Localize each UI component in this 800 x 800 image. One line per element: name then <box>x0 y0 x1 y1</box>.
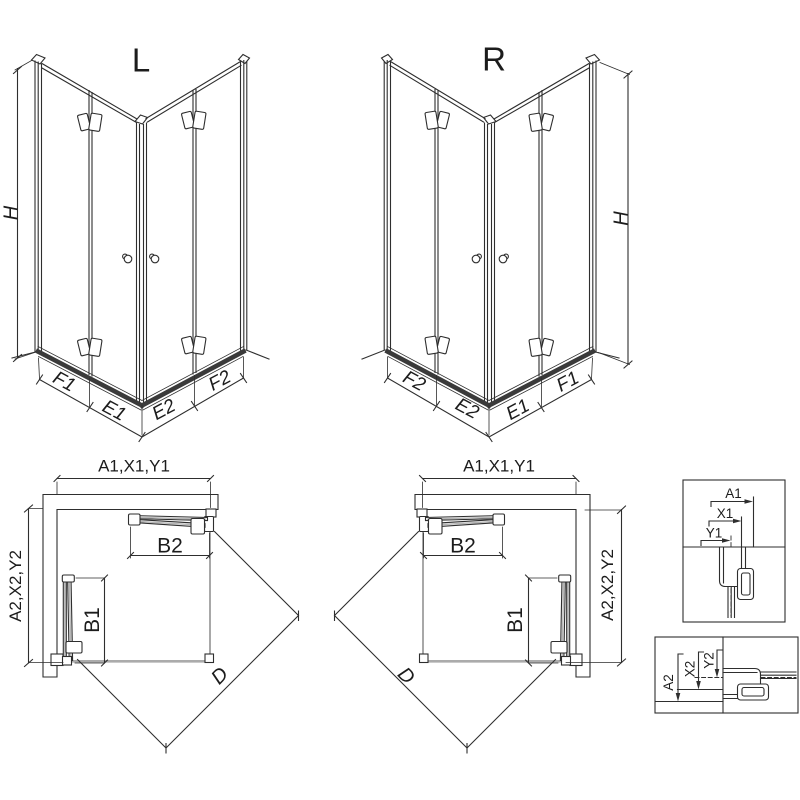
detail-box-wall-profile-top: A1 X1 Y1 <box>683 480 785 622</box>
plan-geometry-mirrored <box>335 476 591 754</box>
dim-label-B2: B2 <box>450 535 476 558</box>
dim-label-depth: A2,X2,Y2 <box>6 550 25 622</box>
dim-label-width: A1,X1,Y1 <box>463 457 535 476</box>
detail-dim-X1: X1 <box>717 506 734 521</box>
enclosure-3d-geometry <box>12 55 269 411</box>
height-dimension-left: H <box>1 61 35 362</box>
detail-box-wall-profile-bottom: A2 X2 Y2 <box>655 637 798 713</box>
drawing-canvas: H F1 E1 E2 F2 L H F2 E2 E1 F1 R A1,X1,Y1 <box>0 0 800 800</box>
dim-label-B1: B1 <box>504 607 527 633</box>
plan-view-left: A1,X1,Y1 A2,X2,Y2 B2 B1 D <box>6 457 299 754</box>
detail-dim-Y1: Y1 <box>706 526 723 541</box>
dim-label-depth: A2,X2,Y2 <box>598 549 617 621</box>
dim-label-H: H <box>611 211 633 226</box>
dim-label-E1: E1 <box>99 396 129 425</box>
detail-dim-X2: X2 <box>683 661 698 678</box>
dim-label-H: H <box>1 205 23 220</box>
detail-dim-A1: A1 <box>725 486 742 501</box>
dim-label-D: D <box>393 663 419 689</box>
plan-view-right: A1,X1,Y1 A2,X2,Y2 B2 B1 D <box>335 457 626 754</box>
bottom-dimension-chain <box>37 357 247 442</box>
dim-label-E1: E1 <box>503 395 533 424</box>
detail-dim-Y2: Y2 <box>702 652 717 669</box>
dim-label-B2: B2 <box>157 535 183 558</box>
dim-label-width: A1,X1,Y1 <box>98 457 170 476</box>
shower-enclosure-technical-drawing: H F1 E1 E2 F2 L H F2 E2 E1 F1 R A1,X1,Y1 <box>0 0 800 800</box>
detail-dim-A2: A2 <box>661 674 676 691</box>
iso-view-right: H F2 E2 E1 F1 R <box>362 41 633 442</box>
height-dimension-right: H <box>599 63 633 369</box>
variant-label-L: L <box>132 42 150 79</box>
dim-label-B1: B1 <box>81 607 104 633</box>
iso-view-left: H F1 E1 E2 F2 L <box>1 42 270 442</box>
enclosure-3d-geometry-mirrored <box>362 55 619 411</box>
variant-label-R: R <box>482 41 506 78</box>
